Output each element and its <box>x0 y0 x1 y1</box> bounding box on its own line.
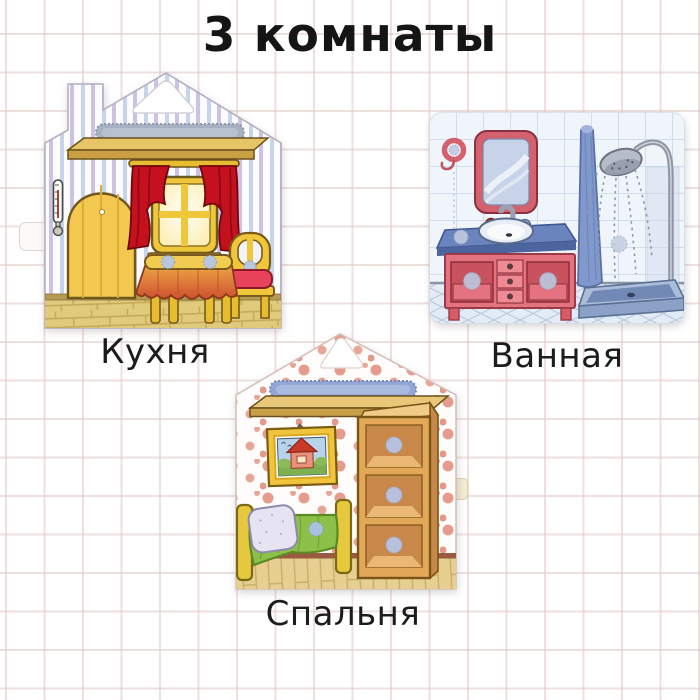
storage-shelf-unit <box>358 403 438 578</box>
drawers <box>497 260 523 303</box>
bedroom-label: Спальня <box>224 594 462 634</box>
velcro-dot <box>309 522 323 536</box>
velcro-dot <box>386 437 402 453</box>
bathroom-card-illustration <box>429 112 685 324</box>
framed-picture <box>267 422 337 486</box>
bathroom-label: Ванная <box>429 336 685 376</box>
velcro-dot <box>464 273 481 290</box>
shower-glass-panel <box>647 167 679 287</box>
thermometer <box>54 180 63 236</box>
velcro-dot <box>386 487 402 503</box>
velcro-dot <box>454 230 468 244</box>
bedroom-card-illustration <box>224 331 462 593</box>
bathroom-mirror <box>475 131 537 213</box>
velcro-dot <box>611 236 627 252</box>
kitchen-shelf <box>68 138 268 159</box>
pillow <box>247 504 299 554</box>
page-title: 3 комнаты <box>0 8 700 63</box>
velcro-dot <box>540 273 557 290</box>
velcro-dot <box>386 537 402 553</box>
product-image: 3 комнаты <box>0 0 700 700</box>
kitchen-card-illustration <box>38 70 288 332</box>
kitchen-door <box>68 185 135 298</box>
